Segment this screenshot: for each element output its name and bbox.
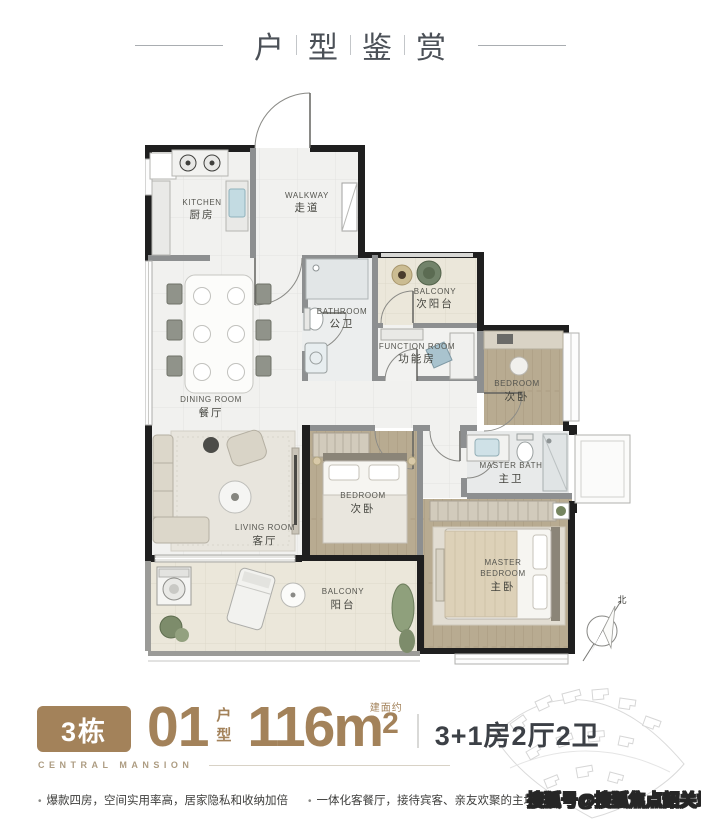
label-master-bedroom: MASTER — [485, 558, 522, 567]
unit-area: 建面约 116m 2 — [247, 701, 398, 753]
svg-text:走道: 走道 — [295, 201, 320, 214]
watermark: 搜狐号@搜狐焦点韶关站 — [527, 786, 701, 811]
brand-row: CENTRAL MANSION — [38, 760, 450, 770]
area-note: 建面约 — [370, 699, 403, 714]
svg-text:公卫: 公卫 — [330, 318, 355, 330]
unit-char-bottom: 型 — [216, 726, 231, 746]
header-title-char: 赏 — [405, 23, 458, 67]
svg-text:餐厅: 餐厅 — [199, 406, 224, 419]
label-master-bath: MASTER BATH — [480, 461, 543, 470]
header-title-char: 户 — [243, 23, 296, 67]
feature-text: 爆款四房，空间实用率高，居家隐私和收纳加倍 — [47, 795, 289, 807]
header-title-char: 型 — [297, 23, 350, 67]
svg-text:客厅: 客厅 — [253, 534, 278, 547]
label-bathroom: BATHROOM — [317, 307, 367, 316]
compass-icon: 北 — [583, 595, 627, 661]
label-north-balcony: BALCONY — [414, 287, 456, 296]
walkway-cabinet — [342, 183, 357, 231]
label-bedroom-ne: BEDROOM — [494, 379, 540, 388]
label-dining: DINING ROOM — [180, 395, 242, 404]
svg-text:主卧: 主卧 — [491, 580, 516, 593]
bullet-icon: • — [308, 796, 312, 807]
svg-text:次卧: 次卧 — [351, 502, 376, 515]
unit-type-label: 户 型 — [216, 706, 231, 745]
label-living: LIVING ROOM — [235, 523, 295, 532]
svg-text:次卧: 次卧 — [505, 390, 530, 403]
floor-plan: KITCHEN 厨房 WALKWAY 走道 BATHROOM 公卫 BALCON… — [145, 91, 635, 668]
feature-item: •爆款四房，空间实用率高，居家隐私和收纳加倍 — [38, 792, 288, 808]
feature-item: •一体化客餐厅，接待宾客、亲友欢聚的主场 — [308, 792, 535, 808]
floor-plan-svg: KITCHEN 厨房 WALKWAY 走道 BATHROOM 公卫 BALCON… — [145, 91, 635, 668]
svg-text:主卫: 主卫 — [499, 473, 524, 485]
living-furniture — [153, 428, 299, 551]
compass-north-label: 北 — [617, 595, 626, 605]
header-right-line — [478, 45, 566, 46]
brand-name: CENTRAL MANSION — [38, 760, 193, 770]
unit-number: 01 — [147, 701, 208, 753]
page: 户 型 鉴 赏 — [0, 0, 701, 822]
bullet-icon: • — [38, 796, 42, 807]
svg-text:次阳台: 次阳台 — [416, 297, 454, 310]
label-walkway: WALKWAY — [285, 191, 329, 200]
feature-text: 一体化客餐厅，接待宾客、亲友欢聚的主场 — [317, 795, 536, 807]
label-function-room: FUNCTION ROOM — [379, 342, 455, 351]
layout-spec: 3+1房2厅2卫 — [435, 714, 600, 753]
unit-char-top: 户 — [216, 706, 231, 726]
feature-list: •爆款四房，空间实用率高，居家隐私和收纳加倍 •一体化客餐厅，接待宾客、亲友欢聚… — [38, 792, 535, 808]
unit-info-bar: 3栋 01 户 型 建面约 116m 2 3+1房2厅2卫 — [37, 701, 600, 753]
header-title-char: 鉴 — [351, 23, 404, 67]
area-value: 116m — [247, 701, 382, 753]
label-south-balcony: BALCONY — [322, 587, 364, 596]
svg-text:功能房: 功能房 — [398, 352, 436, 365]
info-divider — [417, 714, 419, 748]
label-kitchen: KITCHEN — [182, 198, 221, 207]
header-left-line — [135, 45, 223, 46]
page-header: 户 型 鉴 赏 — [0, 24, 701, 66]
svg-text:厨房: 厨房 — [190, 208, 215, 221]
brand-line — [209, 765, 450, 766]
svg-text:BEDROOM: BEDROOM — [480, 569, 526, 578]
building-badge: 3栋 — [37, 706, 131, 752]
svg-text:阳台: 阳台 — [331, 598, 356, 611]
label-bedroom-mid: BEDROOM — [340, 491, 386, 500]
